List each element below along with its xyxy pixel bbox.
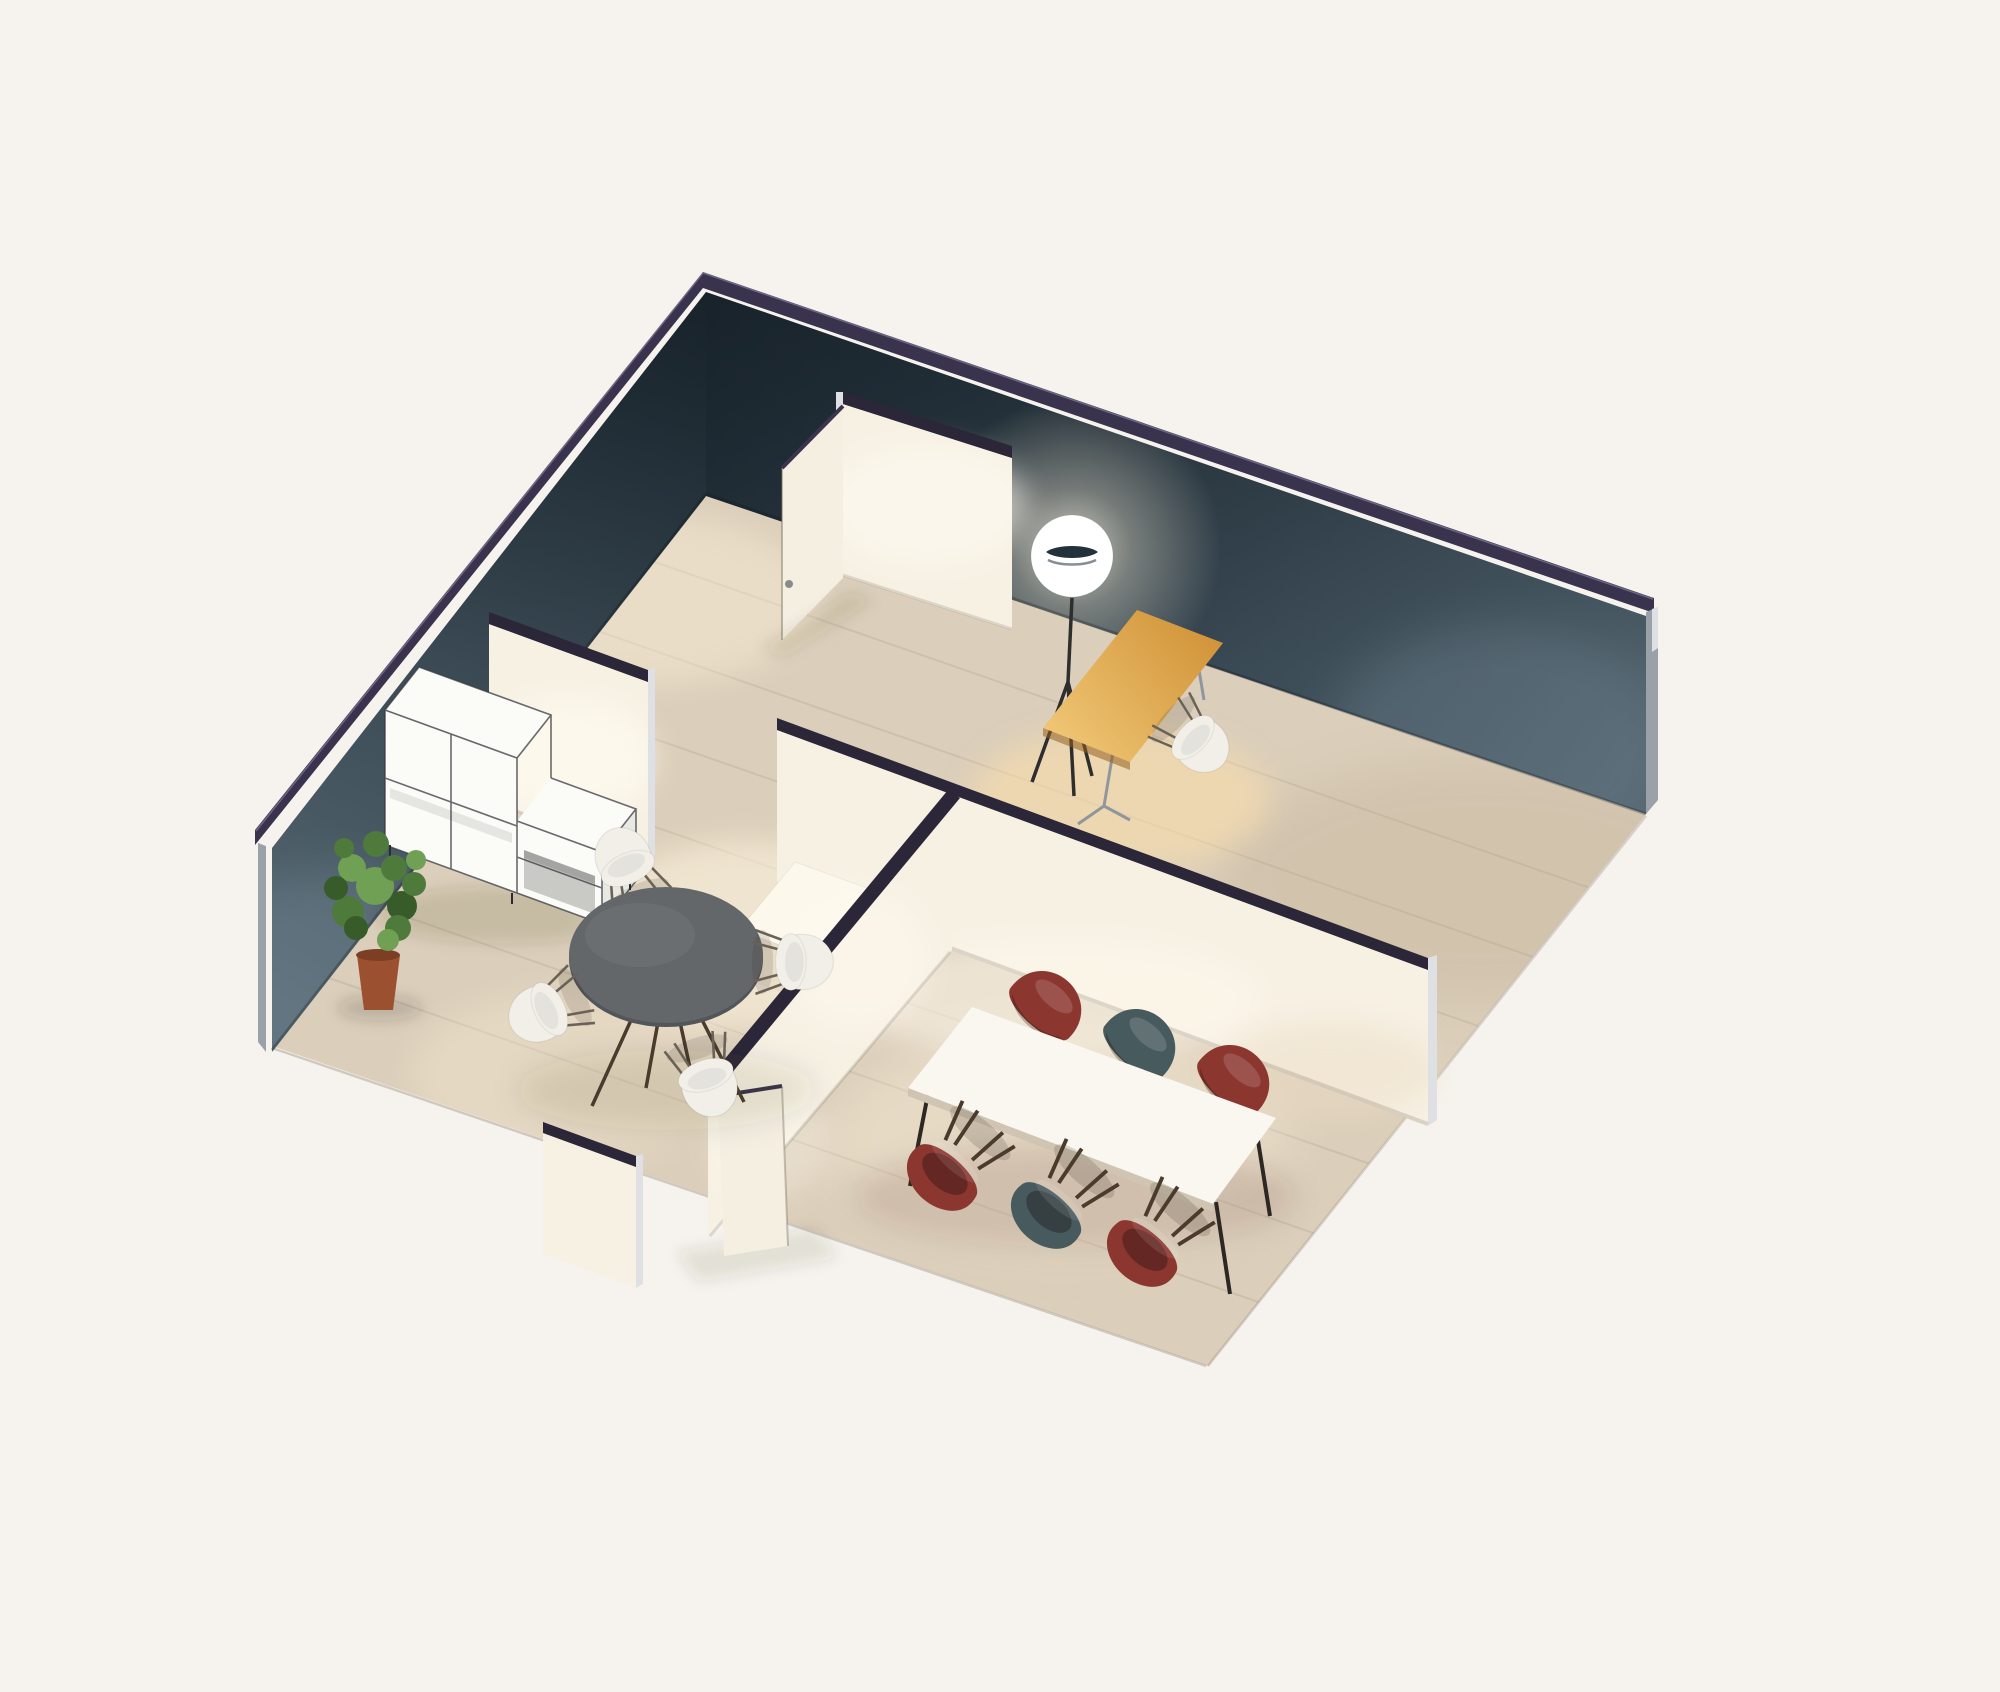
door-top-handle [785,580,793,588]
front-stub-endcap [636,1154,643,1288]
partition-shelf-endcap [648,668,655,860]
back-right-endcap-highlight [1652,607,1658,652]
round-table-sheen [585,903,695,967]
partition-top-glow [828,447,1028,563]
partition-conference-endcap [1428,955,1437,1126]
isometric-floorplan-svg [0,0,2000,1692]
meeting-chair-east [751,930,834,994]
round-table-shadow [516,1050,816,1130]
plant-pot-rim [356,949,400,961]
floorplan-render-stage [0,0,2000,1692]
back-left-wall-endcap [258,843,266,1052]
plant-pot [357,955,400,1010]
